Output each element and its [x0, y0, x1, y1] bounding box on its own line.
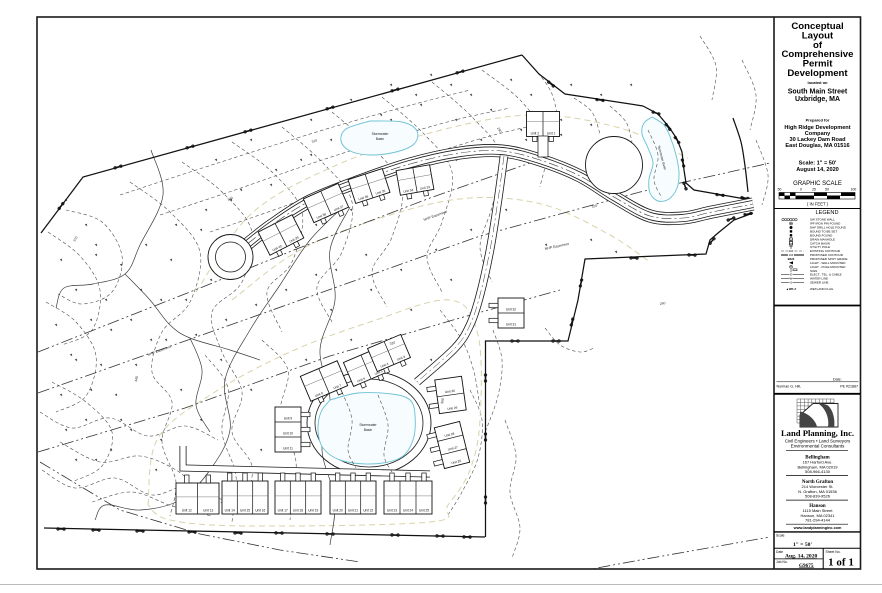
- svg-text:SEWER LINE: SEWER LINE: [810, 281, 829, 285]
- svg-text:Basin: Basin: [364, 428, 373, 432]
- svg-text:25: 25: [812, 188, 816, 192]
- svg-text:Sheet No.: Sheet No.: [826, 550, 841, 554]
- svg-text:Land Planning, Inc.: Land Planning, Inc.: [781, 428, 854, 438]
- svg-text:Stormwater: Stormwater: [372, 132, 390, 136]
- svg-text:Basin: Basin: [376, 137, 384, 141]
- svg-text:▲WF-#: ▲WF-#: [786, 287, 797, 291]
- svg-text:East Douglas, MA 01516: East Douglas, MA 01516: [785, 143, 849, 149]
- svg-text:Job No.: Job No.: [776, 560, 788, 564]
- svg-text:Unit 18: Unit 18: [293, 509, 303, 513]
- svg-text:Unit 32: Unit 32: [506, 308, 516, 312]
- svg-text:Unit 17: Unit 17: [278, 509, 288, 513]
- svg-text:Unit 22: Unit 22: [363, 509, 373, 513]
- svg-text:50: 50: [778, 188, 782, 192]
- svg-text:Norman G. Hill,: Norman G. Hill,: [777, 385, 802, 389]
- svg-text:August 14, 2020: August 14, 2020: [796, 167, 839, 173]
- svg-text:0: 0: [800, 188, 802, 192]
- svg-text:Unit 11: Unit 11: [283, 447, 293, 451]
- svg-text:Unit 14: Unit 14: [225, 509, 235, 513]
- svg-text:located on: located on: [807, 80, 828, 85]
- svg-text:GRAPHIC SCALE: GRAPHIC SCALE: [793, 181, 842, 187]
- svg-text:781-294-4144: 781-294-4144: [805, 518, 831, 523]
- svg-text:Date: Date: [776, 550, 783, 554]
- svg-text:Prepared for: Prepared for: [806, 118, 830, 123]
- svg-text:Unit 2: Unit 2: [531, 132, 540, 136]
- svg-text:Scale: 1" = 50': Scale: 1" = 50': [799, 161, 837, 167]
- svg-text:( IN FEET ): ( IN FEET ): [807, 202, 829, 207]
- svg-text:Unit 25: Unit 25: [419, 509, 429, 513]
- svg-text:Unit 19: Unit 19: [308, 509, 318, 513]
- svg-text:PE #21887: PE #21887: [840, 385, 858, 389]
- svg-text:www.landplanninginc.com: www.landplanninginc.com: [793, 526, 842, 530]
- svg-text:Unit 9: Unit 9: [284, 417, 293, 421]
- svg-text:Unit 23: Unit 23: [387, 509, 397, 513]
- svg-text:D: D: [790, 237, 792, 241]
- svg-text:50: 50: [825, 188, 829, 192]
- svg-text:Unit 31: Unit 31: [506, 323, 516, 327]
- svg-text:100: 100: [789, 249, 794, 253]
- svg-text:S: S: [790, 281, 792, 285]
- svg-text:1 of 1: 1 of 1: [828, 557, 854, 569]
- svg-text:Unit 1: Unit 1: [547, 132, 556, 136]
- svg-text:WETLAND FLAG: WETLAND FLAG: [810, 287, 834, 291]
- svg-text:Development: Development: [787, 68, 848, 79]
- svg-text:508-839-9526: 508-839-9526: [805, 494, 831, 499]
- svg-text:G9675: G9675: [799, 563, 814, 569]
- svg-text:Unit 20: Unit 20: [333, 509, 343, 513]
- svg-text:Unit 21: Unit 21: [348, 509, 358, 513]
- svg-text:Date:: Date:: [833, 378, 842, 382]
- svg-text:South Main Street: South Main Street: [788, 89, 848, 96]
- svg-text:Scale: Scale: [776, 534, 785, 538]
- svg-text:Unit 12: Unit 12: [182, 509, 192, 513]
- svg-text:LEGEND: LEGEND: [815, 210, 838, 216]
- svg-text:100: 100: [851, 188, 857, 192]
- svg-text:Stormwater: Stormwater: [359, 423, 377, 427]
- svg-text:98x6: 98x6: [788, 257, 795, 261]
- svg-text:Unit 16: Unit 16: [255, 509, 265, 513]
- svg-text:Unit 24: Unit 24: [403, 509, 413, 513]
- svg-text:508-966-4130: 508-966-4130: [805, 469, 831, 474]
- svg-text:Environmental Consultants: Environmental Consultants: [791, 444, 846, 449]
- svg-text:Uxbridge, MA: Uxbridge, MA: [795, 96, 840, 103]
- svg-text:Unit 15: Unit 15: [240, 509, 250, 513]
- svg-text:Unit 10: Unit 10: [283, 432, 293, 436]
- svg-text:Unit 13: Unit 13: [203, 509, 213, 513]
- svg-text:1" = 50': 1" = 50': [793, 542, 812, 548]
